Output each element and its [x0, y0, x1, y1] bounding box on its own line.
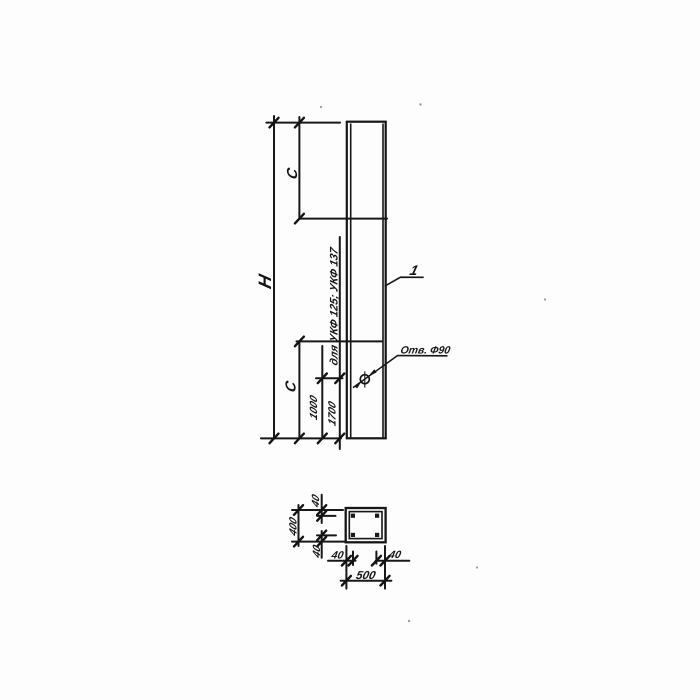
svg-text:Отв. Ф90: Отв. Ф90 — [399, 345, 451, 357]
svg-text:С: С — [284, 379, 300, 394]
svg-text:500: 500 — [355, 569, 377, 582]
svg-text:Н: Н — [254, 272, 275, 291]
svg-text:для УКФ 125; УКФ 137: для УКФ 125; УКФ 137 — [329, 246, 341, 367]
svg-text:1000: 1000 — [308, 394, 320, 422]
svg-text:40: 40 — [329, 550, 344, 562]
svg-text:40: 40 — [387, 549, 402, 561]
svg-text:40: 40 — [310, 493, 322, 510]
svg-text:1700: 1700 — [327, 400, 339, 428]
